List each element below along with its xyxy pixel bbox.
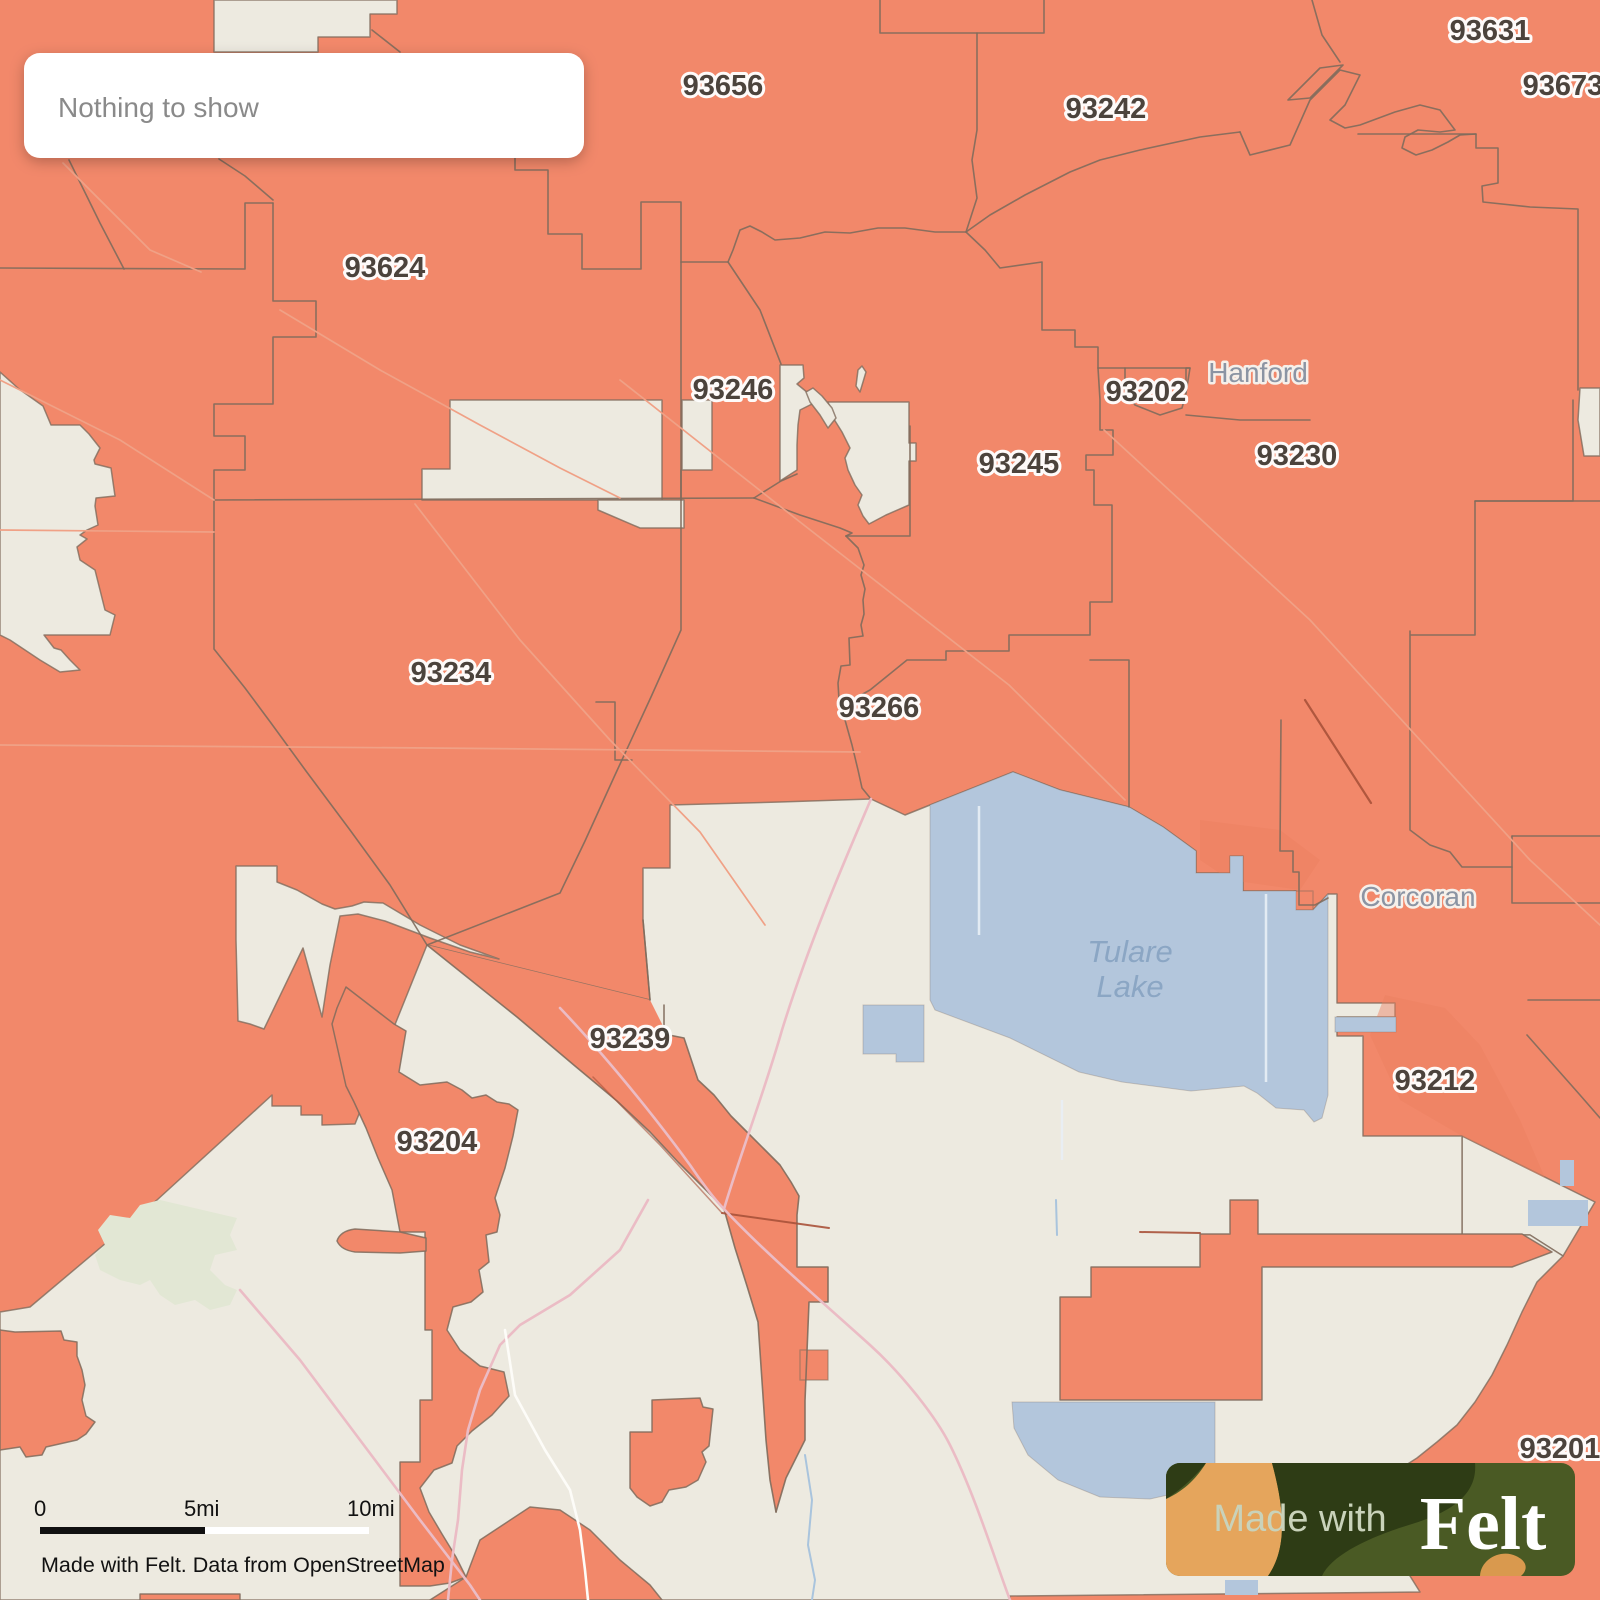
svg-text:93234: 93234 [411, 657, 492, 689]
svg-text:5mi: 5mi [184, 1496, 219, 1521]
svg-text:93673: 93673 [1523, 70, 1600, 102]
svg-text:93266: 93266 [839, 692, 920, 724]
svg-text:93230: 93230 [1257, 440, 1338, 472]
svg-text:Felt: Felt [1420, 1482, 1547, 1566]
svg-text:Corcoran: Corcoran [1360, 881, 1475, 912]
svg-text:Lake: Lake [1096, 969, 1163, 1004]
svg-text:93201: 93201 [1520, 1433, 1600, 1465]
svg-text:Made with: Made with [1213, 1498, 1386, 1540]
svg-text:93239: 93239 [590, 1023, 671, 1055]
svg-text:Nothing to show: Nothing to show [58, 92, 260, 123]
svg-text:0: 0 [34, 1496, 46, 1521]
svg-text:93202: 93202 [1106, 376, 1187, 408]
svg-text:93631: 93631 [1450, 15, 1531, 47]
svg-text:10mi: 10mi [347, 1496, 395, 1521]
svg-text:93246: 93246 [693, 374, 774, 406]
svg-text:93204: 93204 [397, 1126, 478, 1158]
svg-text:93212: 93212 [1395, 1065, 1476, 1097]
svg-text:Made with Felt. Data from Open: Made with Felt. Data from OpenStreetMap [41, 1553, 445, 1577]
svg-text:Tulare: Tulare [1087, 934, 1173, 969]
svg-text:93245: 93245 [979, 448, 1060, 480]
svg-text:Hanford: Hanford [1208, 357, 1308, 388]
svg-text:93242: 93242 [1066, 93, 1147, 125]
svg-text:93656: 93656 [683, 70, 764, 102]
svg-text:93624: 93624 [345, 252, 426, 284]
